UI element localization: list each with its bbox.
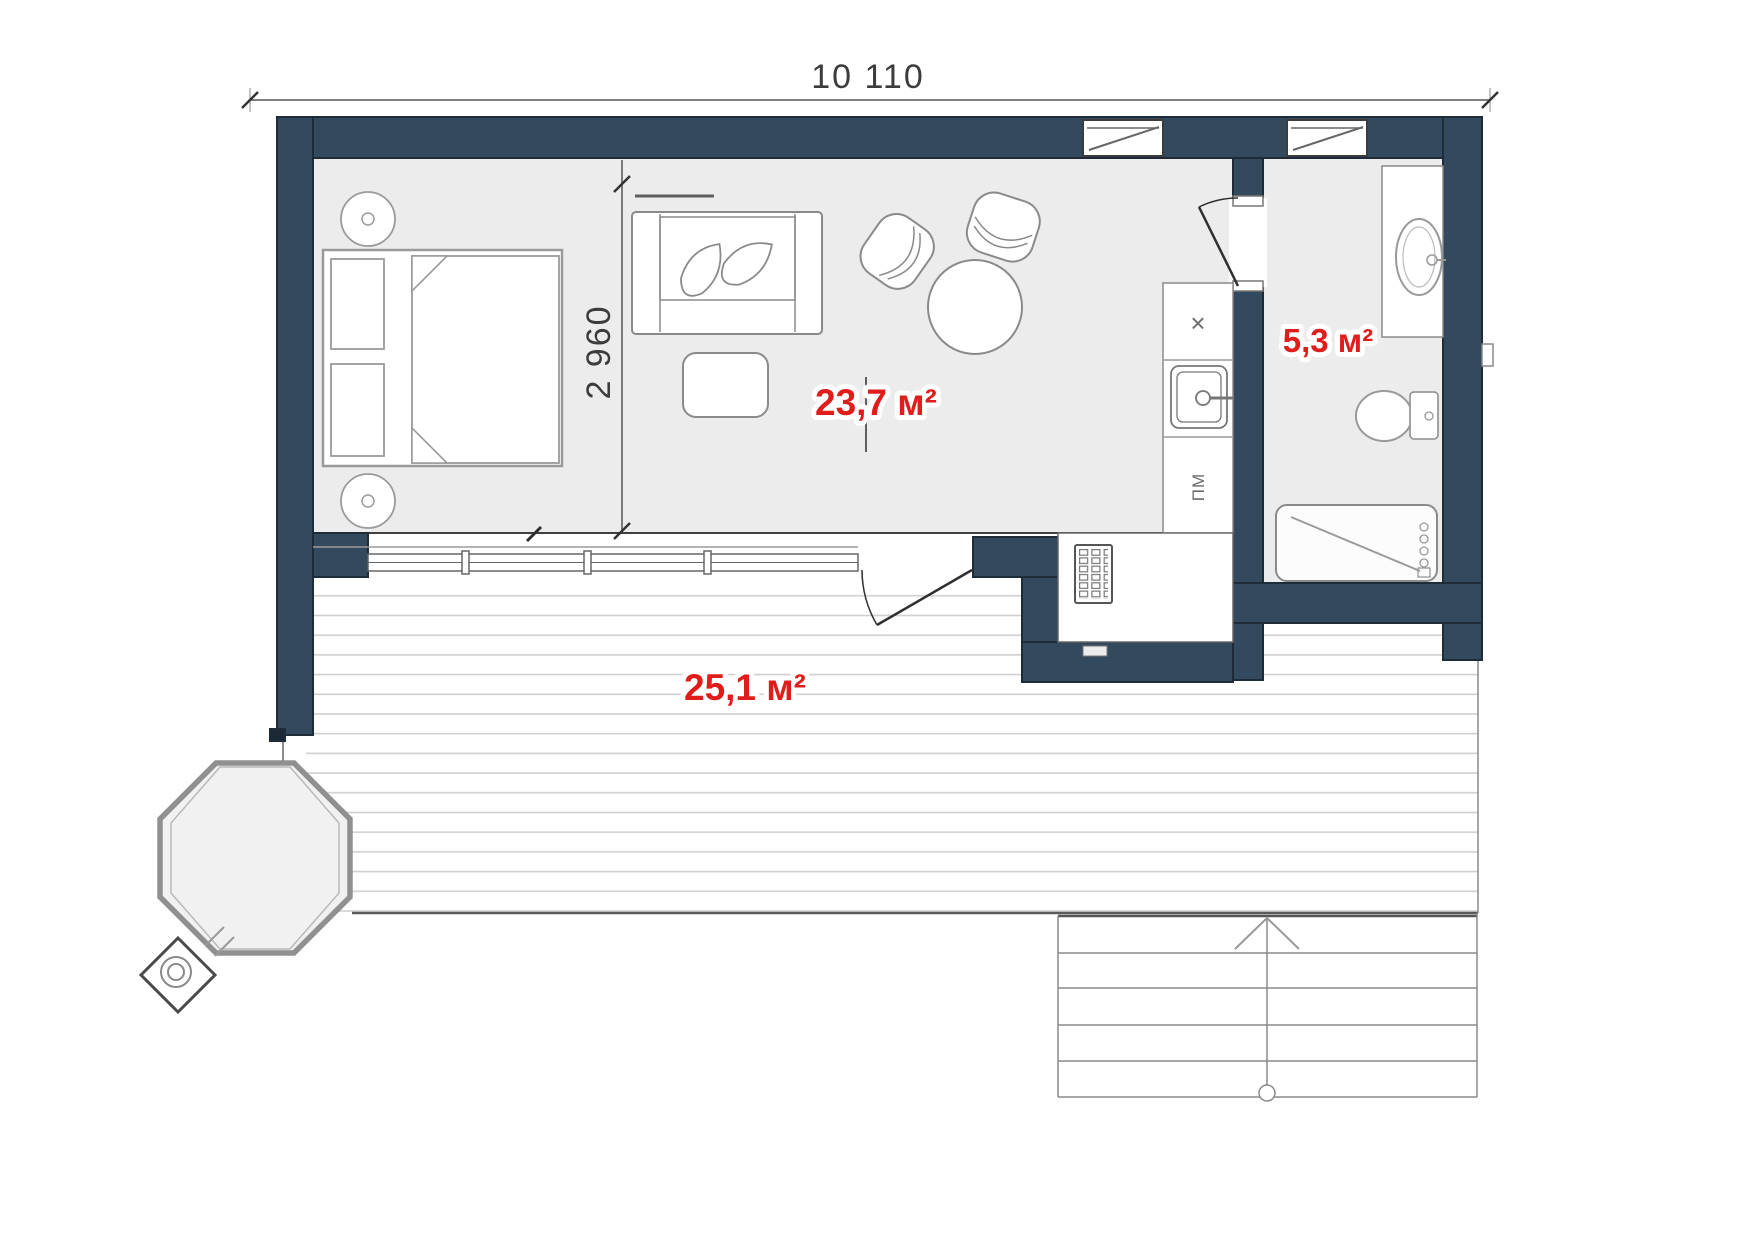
hob-symbol: × [1190,308,1205,338]
vanity [1382,166,1446,337]
grill-appliance [1075,545,1112,603]
area-label-bathroom: 5,3 м² [1283,322,1373,359]
terrace-stairs [1058,913,1477,1101]
floor-plan-canvas: × ПМ [0,0,1754,1241]
left-wall [277,117,313,735]
wall-notch [1083,646,1107,656]
tub-rim [160,763,350,953]
round-table [928,260,1022,354]
deck-planks [306,577,1478,913]
area-label-terrace: 25,1 м² [684,667,806,708]
overall-width-label: 10 110 [811,58,924,96]
sofa [632,212,822,334]
kitchen-side-wall [1022,577,1058,642]
window-1 [1083,120,1163,156]
bedside-lamp-bottom [341,474,395,528]
room-depth-label: 2 960 [580,304,618,399]
window-jamb-block [313,533,368,577]
toilet [1356,391,1438,441]
stairs-up-arrow [1235,918,1299,1101]
dimension-top: 10 110 [242,58,1498,112]
toilet-tank [1410,392,1438,439]
kitchen-bottom-wall [1022,642,1233,682]
area-label-living: 23,7 м² [815,382,937,423]
bathroom-bottom-wall [1233,583,1482,623]
bedside-lamp-top [341,192,395,246]
bed [323,250,562,466]
entry-jamb-block [973,537,1058,577]
pillow-2 [331,364,384,456]
kitchen-sink [1171,366,1234,428]
window-2 [1287,120,1367,156]
floor-plan-page: × ПМ [0,0,1754,1241]
kitchen-counter-bottom [1058,533,1233,656]
kitchen-counter-side: × ПМ [1163,283,1234,533]
terrace-deck [306,577,1478,913]
pillow-1 [331,259,384,349]
dishwasher-label: ПМ [1189,473,1208,501]
coffee-table [683,353,768,417]
left-wall-foot [270,729,285,741]
faucet [1196,391,1210,405]
toilet-bowl [1356,391,1412,441]
sliding-window [313,527,858,574]
shower [1276,505,1437,581]
right-wall [1443,117,1482,660]
mattress [412,256,559,463]
exterior-fixture [1482,344,1493,366]
